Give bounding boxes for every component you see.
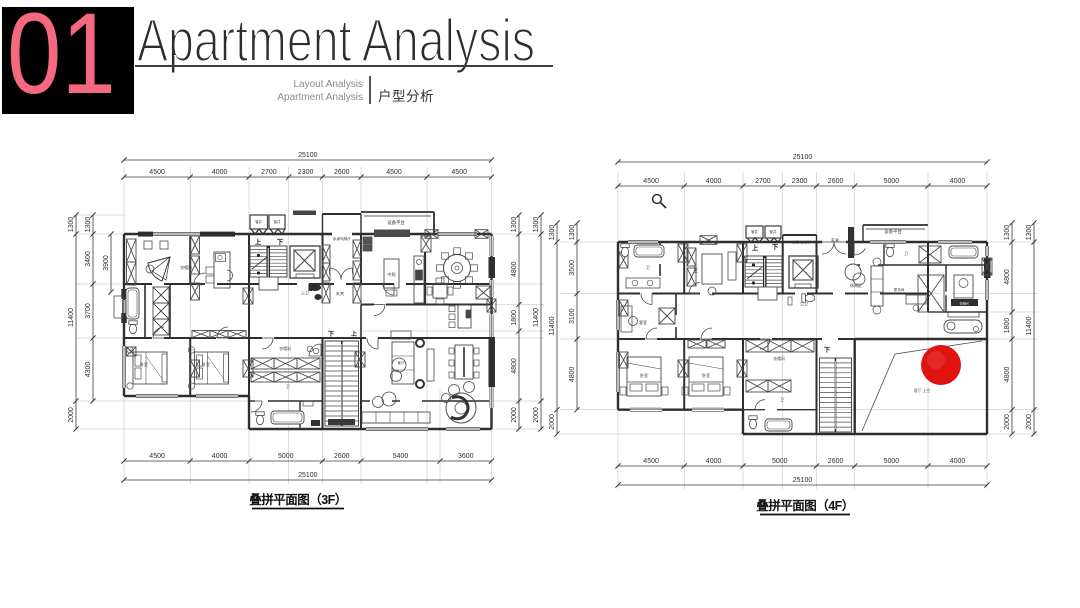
svg-text:衣帽间: 衣帽间: [959, 301, 968, 306]
svg-text:3600: 3600: [458, 453, 474, 460]
svg-text:私家电梯厅: 私家电梯厅: [792, 240, 810, 245]
svg-text:卧室: 卧室: [202, 361, 210, 367]
svg-text:衣帽间: 衣帽间: [279, 346, 291, 351]
svg-text:管井: 管井: [274, 219, 281, 224]
svg-text:2000: 2000: [68, 407, 75, 423]
svg-text:1300: 1300: [1004, 225, 1011, 241]
svg-text:下: 下: [277, 238, 284, 246]
svg-text:2600: 2600: [828, 458, 844, 465]
svg-text:下: 下: [772, 243, 779, 251]
svg-text:公卫: 公卫: [800, 302, 808, 307]
svg-text:管井: 管井: [770, 229, 777, 234]
svg-text:私家电梯厅: 私家电梯厅: [333, 236, 351, 241]
svg-text:叠拼平面图（3F）: 叠拼平面图（3F）: [249, 492, 347, 507]
svg-text:客室: 客室: [639, 319, 647, 325]
svg-text:卫: 卫: [904, 251, 908, 256]
svg-text:设备平台: 设备平台: [387, 219, 405, 226]
svg-text:中厨: 中厨: [387, 271, 395, 278]
svg-text:11400: 11400: [1026, 316, 1033, 335]
svg-text:下: 下: [824, 347, 830, 354]
svg-text:卫: 卫: [286, 384, 290, 389]
svg-text:4500: 4500: [386, 169, 402, 176]
svg-text:11400: 11400: [549, 316, 556, 335]
svg-text:叠拼平面图（4F）: 叠拼平面图（4F）: [756, 498, 854, 513]
svg-text:4800: 4800: [1004, 269, 1011, 285]
svg-text:4800: 4800: [511, 358, 518, 374]
svg-text:玄关: 玄关: [831, 237, 839, 244]
svg-text:衣帽间: 衣帽间: [180, 265, 192, 270]
svg-text:25100: 25100: [793, 154, 813, 161]
svg-text:4800: 4800: [1004, 367, 1011, 383]
svg-text:2700: 2700: [261, 169, 277, 176]
svg-text:1800: 1800: [511, 310, 518, 326]
svg-text:2600: 2600: [828, 178, 844, 185]
svg-text:4000: 4000: [212, 453, 228, 460]
svg-text:休闲区: 休闲区: [850, 282, 862, 288]
svg-text:设备平台: 设备平台: [884, 228, 902, 235]
svg-text:2000: 2000: [549, 414, 556, 430]
svg-text:2000: 2000: [511, 407, 518, 423]
svg-text:4800: 4800: [569, 367, 576, 383]
svg-text:11400: 11400: [68, 308, 75, 327]
svg-text:25100: 25100: [793, 477, 813, 484]
svg-text:4000: 4000: [950, 458, 966, 465]
svg-text:更衣间: 更衣间: [894, 287, 905, 292]
svg-text:公卫: 公卫: [301, 291, 309, 296]
svg-text:4500: 4500: [643, 178, 659, 185]
svg-text:卧室: 卧室: [702, 372, 710, 378]
svg-text:4000: 4000: [950, 178, 966, 185]
svg-text:2600: 2600: [334, 453, 350, 460]
svg-text:1300: 1300: [533, 217, 540, 233]
svg-text:5000: 5000: [772, 458, 788, 465]
svg-text:管井: 管井: [751, 229, 758, 234]
svg-text:卧室: 卧室: [640, 372, 648, 378]
svg-text:5000: 5000: [884, 458, 900, 465]
svg-text:2000: 2000: [533, 407, 540, 423]
svg-text:2700: 2700: [755, 178, 771, 185]
svg-text:4500: 4500: [451, 169, 467, 176]
svg-text:卫: 卫: [780, 397, 784, 402]
svg-text:管井: 管井: [255, 219, 262, 224]
svg-text:2000: 2000: [1026, 414, 1033, 430]
svg-text:11400: 11400: [533, 308, 540, 327]
svg-text:上: 上: [752, 243, 759, 252]
svg-text:卧室: 卧室: [140, 361, 148, 367]
svg-text:5000: 5000: [278, 453, 294, 460]
svg-text:2300: 2300: [792, 178, 808, 185]
svg-text:下: 下: [328, 331, 334, 338]
svg-text:4800: 4800: [511, 261, 518, 277]
svg-text:客厅: 客厅: [397, 360, 405, 365]
svg-text:3900: 3900: [103, 255, 110, 271]
svg-text:4300: 4300: [85, 362, 92, 378]
svg-text:4500: 4500: [149, 169, 165, 176]
svg-text:3500: 3500: [569, 260, 576, 276]
svg-text:4500: 4500: [643, 458, 659, 465]
svg-text:1300: 1300: [549, 225, 556, 241]
svg-text:5400: 5400: [393, 453, 409, 460]
svg-text:5000: 5000: [884, 178, 900, 185]
svg-text:4000: 4000: [706, 458, 722, 465]
svg-text:3400: 3400: [85, 251, 92, 267]
svg-text:上: 上: [351, 330, 357, 338]
svg-text:3700: 3700: [85, 303, 92, 319]
svg-text:衣帽间: 衣帽间: [773, 356, 785, 361]
svg-text:4000: 4000: [212, 169, 228, 176]
svg-text:3100: 3100: [569, 308, 576, 324]
svg-text:玄关: 玄关: [336, 290, 344, 297]
svg-text:客厅 上空: 客厅 上空: [914, 388, 930, 393]
svg-text:2000: 2000: [1004, 414, 1011, 430]
svg-text:25100: 25100: [298, 472, 318, 479]
svg-text:25100: 25100: [298, 152, 318, 159]
svg-text:书房: 书房: [692, 266, 698, 274]
svg-text:1300: 1300: [569, 225, 576, 241]
svg-text:2600: 2600: [334, 169, 350, 176]
svg-text:4000: 4000: [706, 178, 722, 185]
svg-text:1300: 1300: [511, 217, 518, 233]
svg-text:1300: 1300: [68, 217, 75, 233]
svg-text:4500: 4500: [149, 453, 165, 460]
svg-text:卫: 卫: [646, 265, 650, 270]
svg-text:2300: 2300: [298, 169, 314, 176]
svg-text:1300: 1300: [1026, 225, 1033, 241]
svg-text:1300: 1300: [85, 217, 92, 233]
svg-text:上: 上: [255, 237, 262, 246]
svg-text:1800: 1800: [1004, 318, 1011, 334]
